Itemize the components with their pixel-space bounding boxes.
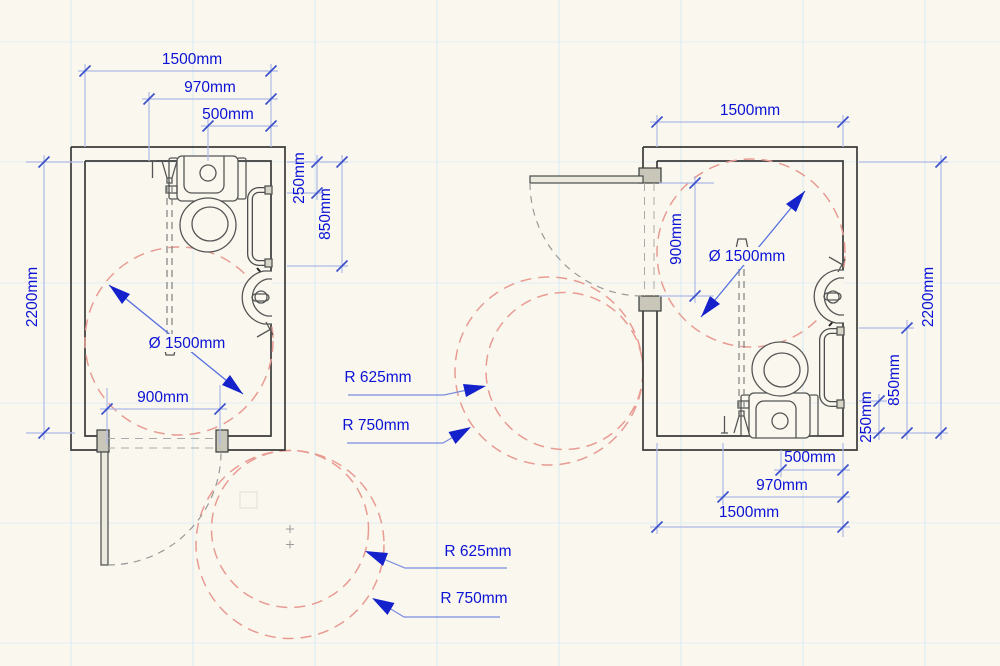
dim-label-bottom-inner-radius[interactable]: R 625mm [444, 543, 511, 560]
dim-label-right-depth[interactable]: 2200mm [920, 267, 937, 327]
dim-label-mid-outer-radius[interactable]: R 750mm [342, 417, 409, 434]
dim-label-bottom-outer-radius[interactable]: R 750mm [440, 590, 507, 607]
paper-background [0, 0, 1000, 666]
dim-label-right-width-bottom[interactable]: 1500mm [719, 504, 779, 521]
dim-label-left-pan-centre[interactable]: 500mm [202, 106, 254, 123]
cad-drawing-canvas[interactable]: R 625mm R 750mm R 625mm R 750mm Ø 1500mm [0, 0, 1000, 666]
dim-label-left-width[interactable]: 1500mm [162, 51, 222, 68]
dim-label-right-rail-offset[interactable]: 970mm [756, 477, 808, 494]
dim-label-left-door-opening[interactable]: 900mm [137, 389, 189, 406]
dim-label-left-cistern-front[interactable]: 250mm [291, 152, 308, 204]
door-jamb [216, 430, 228, 452]
cad-viewport[interactable]: R 625mm R 750mm R 625mm R 750mm Ø 1500mm [0, 0, 1000, 666]
dim-label-right-turning-diameter[interactable]: Ø 1500mm [709, 248, 786, 265]
dim-label-right-pan-centre[interactable]: 500mm [784, 449, 836, 466]
dim-label-left-depth[interactable]: 2200mm [24, 267, 41, 327]
door-leaf[interactable] [530, 176, 643, 183]
dim-label-mid-inner-radius[interactable]: R 625mm [344, 369, 411, 386]
door-jamb [639, 296, 661, 311]
dim-label-left-rail-offset[interactable]: 970mm [184, 79, 236, 96]
dim-label-right-width[interactable]: 1500mm [720, 102, 780, 119]
dim-label-right-pan-front[interactable]: 850mm [886, 354, 903, 406]
dim-label-left-pan-front[interactable]: 850mm [317, 188, 334, 240]
dim-label-left-turning-diameter[interactable]: Ø 1500mm [149, 335, 226, 352]
door-leaf[interactable] [101, 452, 108, 565]
dim-label-right-cistern-front[interactable]: 250mm [858, 391, 875, 443]
dim-label-right-door-opening[interactable]: 900mm [668, 213, 685, 265]
